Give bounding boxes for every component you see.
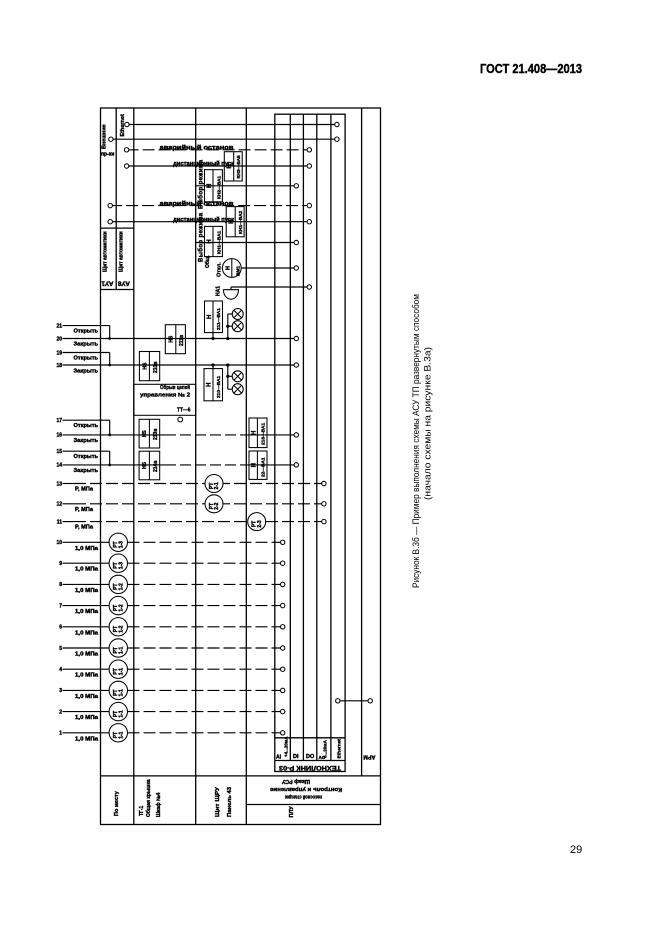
svg-text:3: 3 (59, 688, 62, 694)
svg-text:DO: DO (306, 754, 315, 760)
svg-text:ПЛУ: ПЛУ (289, 806, 295, 818)
svg-text:17: 17 (56, 418, 62, 424)
svg-text:22—ВА1: 22—ВА1 (261, 457, 267, 477)
svg-text:НS: НS (142, 461, 148, 469)
svg-text:1,0 МПа: 1,0 МПа (75, 652, 98, 658)
svg-text:1,0 МПа: 1,0 МПа (75, 673, 98, 679)
svg-text:Открыть: Открыть (74, 356, 99, 362)
svg-text:1-3: 1-3 (118, 562, 124, 569)
svg-text:DI: DI (293, 754, 299, 760)
svg-text:1,0 МПа: 1,0 МПа (75, 609, 98, 615)
svg-text:15: 15 (56, 449, 62, 455)
svg-text:Шкаф РСУ: Шкаф РСУ (281, 778, 310, 785)
svg-text:Обрыв цепей: Обрыв цепей (160, 384, 190, 391)
svg-text:Закрыть: Закрыть (74, 342, 99, 348)
svg-text:7: 7 (59, 603, 62, 609)
svg-text:Общ.: Общ. (204, 255, 211, 268)
svg-text:18: 18 (56, 363, 62, 369)
svg-text:1-1: 1-1 (118, 731, 124, 738)
svg-text:Ethernet: Ethernet (337, 739, 343, 759)
svg-text:АУ1: АУ1 (101, 280, 113, 287)
svg-text:1-2: 1-2 (118, 604, 124, 611)
svg-text:Закрыть: Закрыть (74, 438, 99, 444)
svg-text:1-2: 1-2 (118, 583, 124, 590)
svg-text:Р, МПа: Р, МПа (75, 487, 93, 493)
svg-text:Р, МПа: Р, МПа (75, 525, 93, 531)
svg-text:НS: НS (169, 335, 175, 343)
svg-text:АРМ: АРМ (363, 754, 376, 760)
svg-text:управления № 2: управления № 2 (140, 393, 190, 399)
svg-text:AI: AI (276, 755, 282, 761)
svg-text:Внешние: Внешние (102, 124, 108, 149)
svg-text:Н: Н (225, 266, 231, 270)
svg-text:6: 6 (59, 625, 62, 631)
svg-text:НS: НS (142, 430, 148, 438)
svg-text:(начало схемы на рисунке В.3а): (начало схемы на рисунке В.3а) (423, 347, 434, 500)
svg-text:Выбор режима: Выбор режима (197, 212, 204, 262)
svg-text:210в: 210в (153, 362, 159, 373)
svg-text:Открыть: Открыть (74, 454, 99, 460)
svg-text:19: 19 (56, 350, 62, 356)
svg-text:1,0 МПа: 1,0 МПа (75, 588, 98, 594)
svg-text:1-1: 1-1 (118, 689, 124, 696)
svg-text:Щит ЩРУ: Щит ЩРУ (215, 786, 221, 817)
svg-text:Закрыть: Закрыть (74, 369, 99, 375)
svg-text:20: 20 (56, 336, 62, 342)
svg-text:Панель 43: Панель 43 (227, 787, 233, 817)
svg-text:КН3—ВА5: КН3—ВА5 (236, 155, 242, 179)
svg-text:9: 9 (59, 561, 62, 567)
svg-text:Контроль и управление: Контроль и управление (270, 786, 342, 792)
svg-text:216—ВА1: 216—ВА1 (261, 423, 267, 445)
svg-text:Рисунок В.3б — Пример выполнен: Рисунок В.3б — Пример выполнения схемы А… (411, 294, 422, 588)
svg-text:1: 1 (59, 731, 62, 737)
svg-text:1-2: 1-2 (118, 625, 124, 632)
svg-text:0...20мА: 0...20мА (323, 739, 328, 758)
svg-text:насосной станции: насосной станции (285, 794, 322, 801)
svg-text:пр-ки: пр-ки (101, 152, 114, 158)
svg-text:1,0 МПа: 1,0 МПа (75, 694, 98, 700)
svg-text:Открыть: Открыть (74, 329, 99, 335)
svg-text:29: 29 (570, 844, 582, 856)
svg-text:Р, МПа: Р, МПа (75, 507, 93, 513)
svg-text:Н: Н (207, 315, 213, 319)
svg-text:НА1: НА1 (216, 286, 222, 296)
svg-text:Закрыть: Закрыть (74, 468, 99, 474)
svg-text:КН1—ВА1: КН1—ВА1 (216, 230, 222, 254)
svg-text:Щит автоматики: Щит автоматики (119, 231, 125, 272)
svg-text:1,0 МПа: 1,0 МПа (75, 715, 98, 721)
svg-text:213в: 213в (153, 429, 159, 440)
svg-text:2: 2 (59, 709, 62, 715)
svg-text:ТГ-1: ТГ-1 (139, 805, 145, 816)
svg-text:Общая крышка: Общая крышка (145, 779, 152, 817)
svg-text:Н: Н (227, 164, 233, 168)
svg-text:Откл.: Откл. (217, 262, 223, 277)
svg-text:Шкаф №4: Шкаф №4 (155, 792, 162, 817)
svg-text:КН1—ВА2: КН1—ВА2 (238, 210, 244, 234)
svg-text:1,0 МПа: 1,0 МПа (75, 736, 98, 742)
svg-text:8: 8 (59, 582, 62, 588)
svg-text:12: 12 (56, 502, 62, 508)
svg-text:Ethernet: Ethernet (120, 114, 126, 136)
svg-text:21: 21 (56, 323, 62, 329)
svg-text:214в: 214в (153, 461, 159, 472)
svg-text:2-3: 2-3 (257, 520, 263, 527)
svg-text:211в: 211в (179, 335, 185, 346)
svg-text:ГОСТ 21.408—2013: ГОСТ 21.408—2013 (480, 62, 582, 76)
svg-text:Щит автоматики: Щит автоматики (103, 231, 109, 272)
svg-text:Н: Н (251, 431, 257, 435)
svg-text:11: 11 (57, 519, 63, 525)
svg-text:1-3: 1-3 (118, 541, 124, 548)
svg-text:ТЕХНОЛИНК Р-03: ТЕХНОЛИНК Р-03 (278, 764, 341, 770)
svg-text:211—ВА1: 211—ВА1 (216, 308, 222, 330)
svg-text:13: 13 (56, 481, 62, 487)
svg-text:Н: Н (207, 383, 213, 387)
svg-text:2-2: 2-2 (214, 502, 220, 509)
svg-text:Н: Н (207, 184, 213, 188)
svg-text:16: 16 (56, 433, 62, 439)
svg-text:Н: Н (251, 463, 257, 467)
svg-text:210—ВА1: 210—ВА1 (216, 376, 222, 398)
svg-text:Н: Н (229, 220, 235, 224)
svg-text:ТТ—6: ТТ—6 (177, 408, 191, 414)
svg-text:АУ8: АУ8 (118, 280, 130, 287)
svg-text:14: 14 (56, 463, 62, 469)
svg-text:1,0 МПа: 1,0 МПа (75, 567, 98, 573)
svg-text:Выбор режима: Выбор режима (197, 159, 204, 209)
svg-text:1-1: 1-1 (118, 668, 124, 675)
svg-text:4: 4 (59, 667, 62, 673)
svg-text:1-1: 1-1 (118, 710, 124, 717)
svg-text:Н: Н (207, 239, 213, 243)
svg-text:1,0 МПа: 1,0 МПа (75, 630, 98, 636)
svg-text:аварийный останов: аварийный останов (160, 199, 234, 207)
svg-text:1-1: 1-1 (118, 647, 124, 654)
svg-text:По месту: По месту (114, 790, 120, 816)
svg-text:аварийный останов: аварийный останов (160, 144, 234, 152)
svg-text:+4...20мА: +4...20мА (284, 736, 289, 757)
svg-text:НS: НS (142, 362, 148, 370)
svg-text:КН2—ВА1: КН2—ВА1 (216, 175, 222, 199)
svg-text:5: 5 (59, 646, 62, 652)
svg-text:1,0 МПа: 1,0 МПа (75, 546, 98, 552)
svg-text:2-1: 2-1 (214, 482, 220, 489)
svg-text:Открыть: Открыть (74, 423, 99, 429)
svg-text:ВМ1: ВМ1 (235, 266, 241, 276)
svg-text:10: 10 (56, 540, 62, 546)
